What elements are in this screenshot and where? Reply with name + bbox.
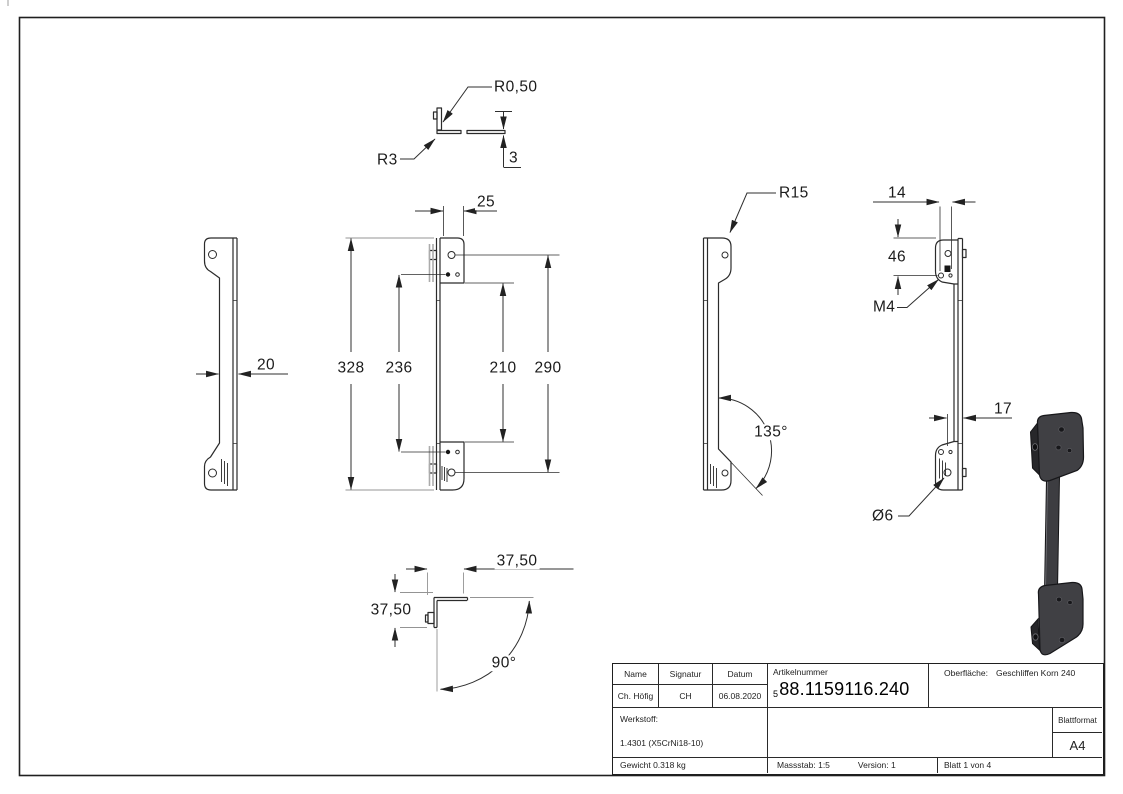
dim-label-r3: R3 — [375, 152, 400, 168]
detail-view-bottom — [395, 569, 574, 692]
werkstoff-label: Werkstoff: — [620, 714, 767, 724]
version-value: Version: 1 — [858, 760, 896, 770]
datum-value: 06.08.2020 — [713, 685, 768, 708]
massstab-value: Massstab: 1:5 — [777, 760, 830, 770]
dim-label-r050: R0,50 — [492, 79, 539, 95]
page-border — [8, 0, 1105, 776]
drawing-sheet: R0,50 R3 3 20 25 328 236 210 290 R15 135… — [0, 0, 1123, 794]
artikelnummer-value: 588.1159116.240 — [773, 679, 909, 700]
detail-view-top — [399, 87, 521, 168]
artikelnummer-label: Artikelnummer — [773, 667, 828, 677]
dim-label-dia6: Ø6 — [870, 508, 895, 524]
gewicht-cell: Gewicht 0.318 kg — [613, 758, 768, 773]
blatt-cell: Blatt 1 von 4 — [938, 758, 1102, 773]
dim-label-135deg: 135° — [752, 424, 790, 440]
dim-label-46: 46 — [886, 249, 908, 265]
dim-label-r15: R15 — [777, 185, 811, 201]
title-block: Name Signatur Datum Ch. Höfig CH 06.08.2… — [612, 663, 1104, 775]
dim-label-14: 14 — [886, 185, 908, 201]
signatur-value: CH — [659, 685, 713, 708]
dim-label-328: 328 — [335, 360, 366, 376]
dim-label-236: 236 — [383, 360, 414, 376]
oberflaeche-label: Oberfläche: — [944, 668, 988, 678]
werkstoff-value: 1.4301 (X5CrNi18-10) — [620, 738, 767, 748]
dim-label-17: 17 — [992, 401, 1014, 417]
dim-label-3: 3 — [507, 150, 520, 166]
dim-label-m4: M4 — [871, 299, 897, 315]
name-header: Name — [613, 664, 659, 685]
blattformat-value: A4 — [1053, 733, 1102, 758]
name-value: Ch. Höfig — [613, 685, 659, 708]
dim-label-25: 25 — [475, 194, 497, 210]
dim-label-290: 290 — [532, 360, 563, 376]
dim-label-3750-top: 37,50 — [495, 553, 540, 569]
oberflaeche-cell: Oberfläche:Geschliffen Korn 240 — [929, 664, 1102, 708]
view-side-r15 — [704, 193, 777, 496]
part-3d-render — [1031, 412, 1084, 654]
dim-label-3750-left: 37,50 — [369, 602, 414, 618]
signatur-header: Signatur — [659, 664, 713, 685]
empty-cell — [768, 708, 1053, 758]
werkstoff-cell: Werkstoff: 1.4301 (X5CrNi18-10) — [613, 708, 768, 758]
oberflaeche-value: Geschliffen Korn 240 — [996, 668, 1075, 678]
dim-label-20: 20 — [255, 357, 277, 373]
blattformat-header: Blattformat — [1053, 708, 1102, 733]
view-front — [346, 206, 560, 490]
artikelnummer-cell: Artikelnummer 588.1159116.240 — [768, 664, 929, 708]
dim-label-90deg: 90° — [490, 655, 519, 671]
massstab-cell: Massstab: 1:5Version: 1 — [768, 758, 938, 773]
datum-header: Datum — [713, 664, 768, 685]
dim-label-210: 210 — [487, 360, 518, 376]
